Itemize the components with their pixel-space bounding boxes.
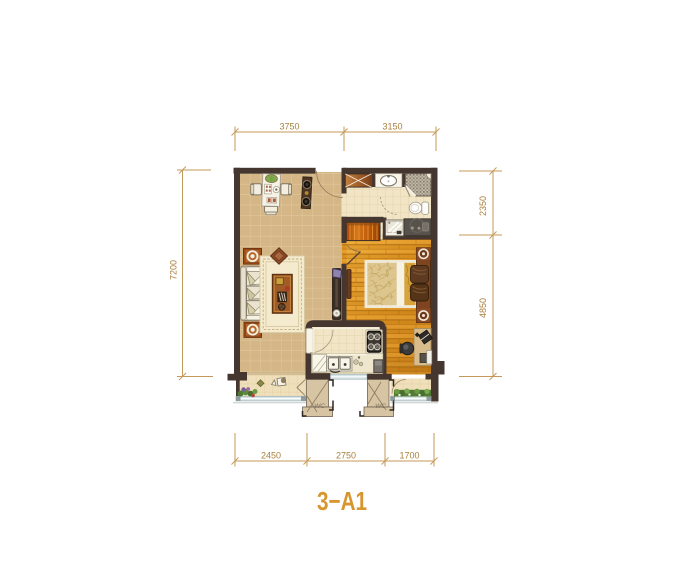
svg-text:1700: 1700 [399,451,419,461]
svg-text:WC: WC [375,403,386,410]
svg-text:WC: WC [314,403,325,410]
svg-text:3750: 3750 [279,122,299,132]
svg-text:3150: 3150 [382,122,402,132]
svg-text:7200: 7200 [169,260,179,280]
svg-text:2450: 2450 [261,451,281,461]
svg-text:4850: 4850 [478,298,488,318]
svg-text:2750: 2750 [336,451,356,461]
svg-text:3−A1: 3−A1 [317,486,367,516]
svg-text:2350: 2350 [478,196,488,216]
